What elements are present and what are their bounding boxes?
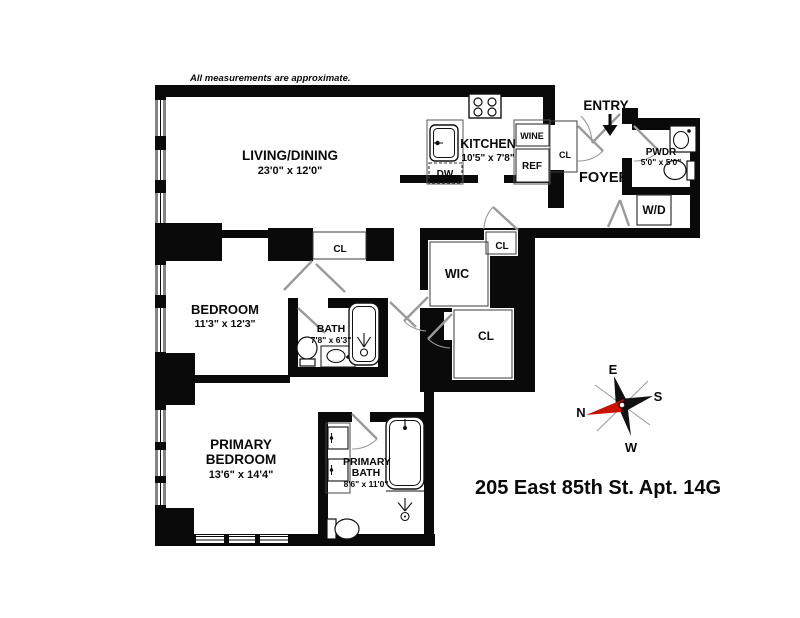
kitchen-sink-icon bbox=[430, 125, 458, 161]
primary-shower-icon bbox=[386, 491, 424, 521]
primary-sink-1-icon bbox=[328, 427, 348, 449]
closet-right-door bbox=[484, 207, 518, 230]
bedroom-door bbox=[284, 261, 345, 292]
primary-bedroom-label-2: BEDROOM bbox=[206, 452, 277, 467]
address-text: 205 East 85th St. Apt. 14G bbox=[475, 477, 721, 499]
bath-dims: 7'8" x 6'3" bbox=[311, 335, 351, 345]
primary-bath-dims: 8'6" x 11'0" bbox=[344, 479, 389, 489]
laundry-door bbox=[608, 200, 629, 227]
closet-lower-room bbox=[452, 308, 514, 380]
living-dining-dims: 23'0" x 12'0" bbox=[258, 165, 323, 177]
compass-south-label: S bbox=[654, 389, 663, 404]
primary-bath-label-2: BATH bbox=[352, 467, 380, 479]
foyer-label: FOYER bbox=[579, 170, 629, 186]
primary-tub-icon bbox=[386, 417, 424, 489]
powder-dims: 5'0" x 5'0" bbox=[641, 157, 681, 167]
bath-tub-icon bbox=[349, 303, 379, 365]
bottom-wall-windows bbox=[196, 535, 288, 544]
compass-hub bbox=[619, 402, 625, 408]
kitchen-label: KITCHEN bbox=[460, 137, 516, 151]
kitchen-dims: 10'5" x 7'8" bbox=[461, 153, 514, 164]
wine-label: WINE bbox=[520, 131, 544, 141]
primary-bedroom-label-1: PRIMARY bbox=[210, 437, 272, 452]
ref-label: REF bbox=[522, 161, 542, 172]
bath-label: BATH bbox=[317, 323, 345, 335]
floorplan-page: { "disclaimer": "All measurements are ap… bbox=[0, 0, 800, 618]
compass: E S W N bbox=[576, 362, 662, 455]
closet-top-label: CL bbox=[333, 244, 346, 255]
bedroom-label: BEDROOM bbox=[191, 302, 259, 317]
stove-icon bbox=[469, 94, 501, 118]
column-living-bedroom bbox=[166, 223, 222, 261]
closet-right-label: CL bbox=[495, 241, 508, 252]
bedroom-dims: 11'3" x 12'3" bbox=[194, 318, 255, 330]
compass-north-label: N bbox=[576, 405, 585, 420]
dw-label: DW bbox=[437, 169, 454, 180]
foyer-closet-label: CL bbox=[559, 150, 571, 160]
living-dining-label: LIVING/DINING bbox=[242, 148, 338, 163]
compass-east-label: E bbox=[609, 362, 618, 377]
floorplan-drawing: E S W N All measurements are approximate… bbox=[0, 0, 800, 618]
compass-west-label: W bbox=[625, 440, 638, 455]
foyer-closet-outline bbox=[550, 121, 577, 172]
closet-lower-label: CL bbox=[478, 329, 494, 343]
primary-toilet-icon bbox=[327, 519, 359, 539]
wic-label: WIC bbox=[445, 267, 469, 281]
primary-bedroom-dims: 13'6" x 14'4" bbox=[209, 469, 274, 481]
disclaimer-text: All measurements are approximate. bbox=[189, 73, 351, 84]
entry-label: ENTRY bbox=[583, 98, 628, 113]
laundry-label: W/D bbox=[642, 203, 666, 217]
